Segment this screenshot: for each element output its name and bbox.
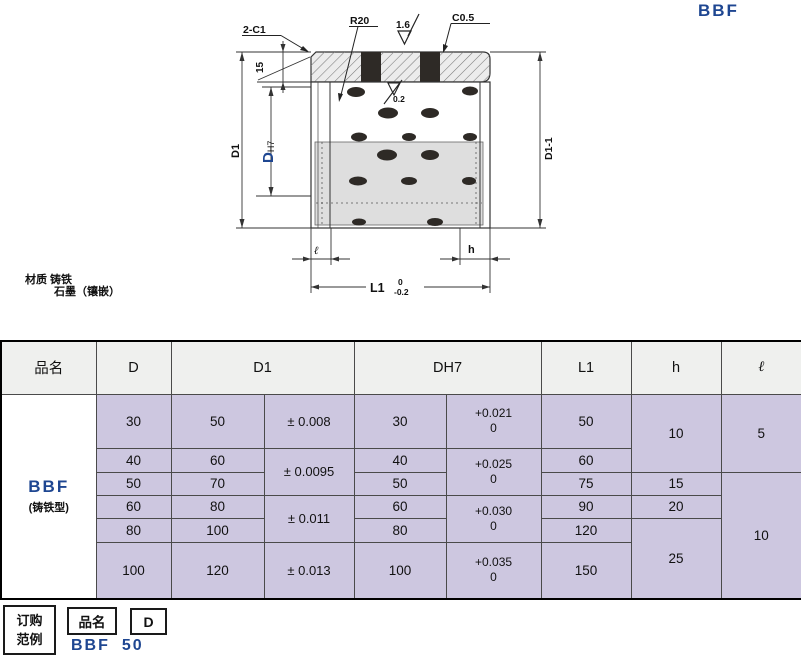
bushing-technical-drawing: D1 DH7 D1-1 15 2-C1 R20 [0,0,801,335]
header-l: ℓ [721,341,801,394]
cell-d1: 70 [171,472,264,495]
cell-l1: 50 [541,394,631,448]
product-name: BBF [2,477,96,497]
svg-text:0: 0 [398,277,403,287]
product-name-cell: BBF (铸铁型) [1,394,96,599]
dim-l1: L1 0 -0.2 [311,277,490,297]
svg-text:15: 15 [255,61,266,73]
svg-text:ℓ: ℓ [314,244,319,257]
cell-dh7-tol: +0.030 0 [446,495,541,542]
svg-text:DH7: DH7 [260,141,277,163]
cell-dh7: 40 [354,448,446,472]
cell-l1: 120 [541,518,631,542]
cell-dh7: 80 [354,518,446,542]
cell-d1-tol: ± 0.013 [264,542,354,599]
cell-d: 40 [96,448,171,472]
cell-dh7: 30 [354,394,446,448]
cell-h: 20 [631,495,721,518]
table-row: 60 80 ± 0.011 60 +0.030 0 90 20 [1,495,801,518]
product-type: (铸铁型) [2,499,96,515]
cell-dh7: 100 [354,542,446,599]
svg-text:R20: R20 [350,15,369,27]
svg-text:C0.5: C0.5 [452,12,474,24]
cell-l1: 150 [541,542,631,599]
cell-h: 25 [631,518,721,599]
cell-dh7-tol: +0.025 0 [446,448,541,495]
cell-d: 100 [96,542,171,599]
cell-dh7: 50 [354,472,446,495]
cell-d: 50 [96,472,171,495]
callout-chamfer-right: C0.5 [443,12,490,53]
cell-d1: 50 [171,394,264,448]
cell-d1: 120 [171,542,264,599]
svg-text:D1: D1 [230,144,242,158]
order-example-d: 50 [122,637,144,654]
graphite-plug-section [361,52,381,82]
cell-l1: 90 [541,495,631,518]
lower-body-shaded [315,142,483,225]
table-row: 80 100 80 120 25 [1,518,801,542]
cell-l1: 60 [541,448,631,472]
order-example-name: BBF [71,637,110,654]
order-field-d: D [130,608,167,635]
spec-table: 品名 D D1 DH7 L1 h ℓ BBF (铸铁型) 30 50 ± 0.0… [0,340,801,600]
callout-chamfer-left: 2-C1 [242,24,309,52]
cell-d1: 80 [171,495,264,518]
cell-dh7: 60 [354,495,446,518]
svg-text:h: h [468,244,475,256]
table-row: BBF (铸铁型) 30 50 ± 0.008 30 +0.021 0 50 1… [1,394,801,448]
dim-h: h [440,244,510,262]
cell-d: 30 [96,394,171,448]
cell-d1-tol: ± 0.008 [264,394,354,448]
material-line2: 石墨（镶嵌） [54,286,120,298]
cell-d1: 100 [171,518,264,542]
order-example-label: 订购 范例 [3,605,56,655]
material-note: 材质 铸铁 石墨（镶嵌） [25,274,120,298]
cell-l: 5 [721,394,801,472]
header-h: h [631,341,721,394]
header-name: 品名 [1,341,96,394]
svg-text:D1-1: D1-1 [543,137,555,160]
cell-dh7-tol: +0.021 0 [446,394,541,448]
header-d1: D1 [171,341,354,394]
header-dh7: DH7 [354,341,541,394]
cell-d: 60 [96,495,171,518]
svg-text:1.6: 1.6 [396,20,410,31]
section-band [311,52,490,82]
table-row: 50 70 50 75 15 10 [1,472,801,495]
dim-dh7: DH7 [260,87,277,196]
cell-h: 15 [631,472,721,495]
header-row: 品名 D D1 DH7 L1 h ℓ [1,341,801,394]
header-l1: L1 [541,341,631,394]
roughness-symbol-top: 1.6 [396,14,419,44]
svg-text:0.2: 0.2 [393,94,405,104]
svg-text:L1: L1 [370,281,385,295]
cell-d1: 60 [171,448,264,472]
material-line1: 材质 铸铁 [25,274,120,286]
dim-d1: D1 [230,52,245,228]
order-example-value: BBF50 [71,637,144,655]
order-field-name: 品名 [67,607,117,635]
header-d: D [96,341,171,394]
dim-l: ℓ [292,244,350,262]
svg-text:2-C1: 2-C1 [243,24,266,36]
cell-l: 10 [721,472,801,599]
cell-l1: 75 [541,472,631,495]
cell-d: 80 [96,518,171,542]
graphite-plug-section [420,52,440,82]
cell-d1-tol: ± 0.011 [264,495,354,542]
cell-h: 10 [631,394,721,472]
dim-d1-1: D1-1 [538,52,556,228]
svg-text:-0.2: -0.2 [394,287,409,297]
cell-d1-tol: ± 0.0095 [264,448,354,495]
cell-dh7-tol: +0.035 0 [446,542,541,599]
